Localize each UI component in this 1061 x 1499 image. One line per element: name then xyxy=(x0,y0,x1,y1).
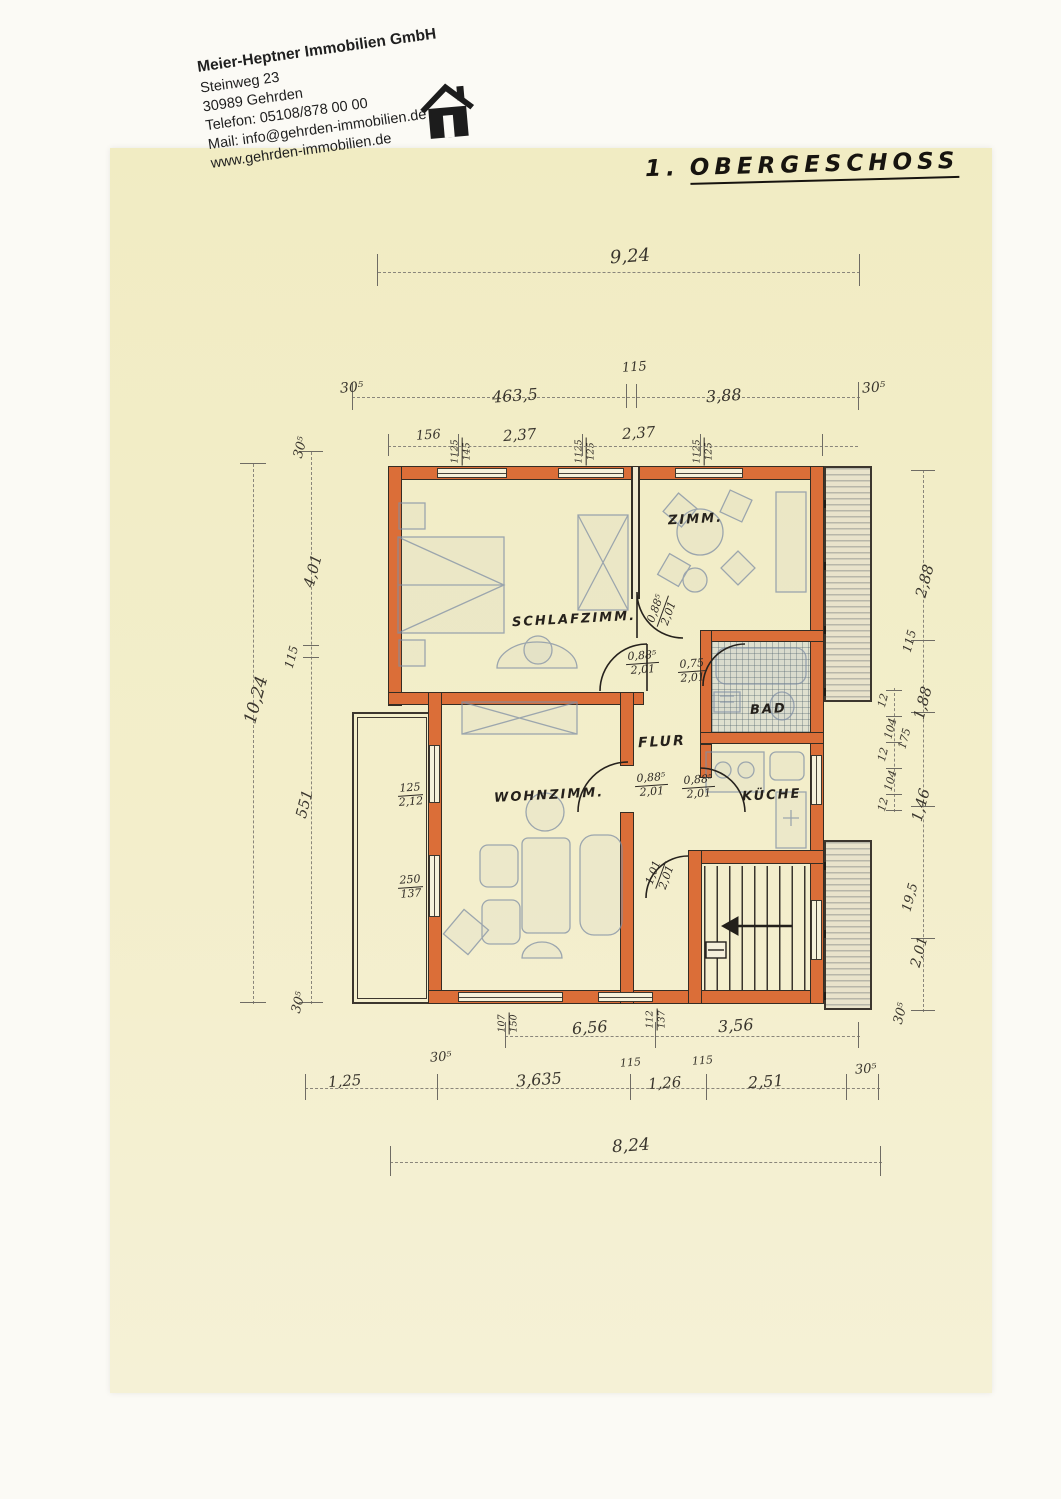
room-label-flur: FLUR xyxy=(638,733,687,751)
yellowed-paper-background xyxy=(110,148,992,1393)
window-top-3 xyxy=(675,468,743,478)
dim-tick xyxy=(886,810,902,811)
dim-top-156: 156 xyxy=(416,427,442,444)
dim-top-388: 3,88 xyxy=(705,385,742,406)
window-top-2 xyxy=(558,468,624,478)
dim-line xyxy=(253,464,254,1004)
dim-bottom-3635: 3,635 xyxy=(515,1068,562,1090)
window-size-left2: 250137 xyxy=(397,873,424,901)
room-label-kueche: KÜCHE xyxy=(742,786,802,804)
door-size-schlafzimmer: 0,88⁵2,01 xyxy=(625,649,660,678)
balcony-top-right xyxy=(824,466,872,702)
dim-tick xyxy=(240,1002,266,1003)
window-size-bottom1: 107150 xyxy=(498,1012,521,1034)
dim-tick xyxy=(305,1074,306,1100)
dim-tick xyxy=(880,1146,881,1176)
wall-bad-bottom xyxy=(700,732,824,744)
wall-schlafzimmer-bottom xyxy=(388,692,644,705)
dim-tick xyxy=(582,434,583,456)
dim-bottom-656: 6,56 xyxy=(571,1017,608,1038)
dim-top-305-left: 30⁵ xyxy=(339,379,363,397)
dim-tick xyxy=(858,1022,859,1048)
dim-tick xyxy=(858,382,859,410)
wall-bad-left xyxy=(700,630,712,744)
window-bottom-1 xyxy=(458,992,563,1002)
dim-bottom-305-a: 30⁵ xyxy=(430,1049,453,1065)
dim-tick xyxy=(822,434,823,456)
floor-title-number: 1. xyxy=(645,155,680,182)
dim-line xyxy=(505,1036,860,1037)
window-size-top3: 1125125 xyxy=(693,437,716,465)
dim-top-237-a: 2,37 xyxy=(502,425,537,445)
wall-bad-top xyxy=(700,630,824,642)
dim-tick xyxy=(911,470,935,471)
wall-flur-wohnzimmer-upper xyxy=(620,692,634,766)
window-size-top2: 1125125 xyxy=(575,437,598,465)
dim-tick xyxy=(630,1074,631,1100)
dim-tick xyxy=(437,1074,438,1100)
dim-tick xyxy=(846,1074,847,1100)
dim-top-305-right: 30⁵ xyxy=(861,379,885,397)
dim-tick xyxy=(458,434,459,456)
wall-stair-top xyxy=(688,850,824,864)
dim-tick xyxy=(886,690,902,691)
window-size-left1: 1252,12 xyxy=(397,781,424,809)
door-size-bad: 0,752,01 xyxy=(677,657,707,685)
dim-bottom-356: 3,56 xyxy=(717,1015,754,1036)
door-size-kueche: 0,88⁵2,01 xyxy=(681,773,716,802)
dim-top-overall: 9,24 xyxy=(609,245,650,269)
dim-line xyxy=(352,397,860,398)
dim-tick xyxy=(706,1074,707,1100)
dim-tick xyxy=(911,1010,935,1011)
wall-schlafzimmer-zimmer xyxy=(631,467,640,599)
dim-tick xyxy=(303,657,319,658)
window-left-2 xyxy=(429,855,440,917)
dim-tick xyxy=(240,463,266,464)
window-kueche-right xyxy=(811,755,822,805)
dim-top-115: 115 xyxy=(622,359,648,376)
window-top-1 xyxy=(437,468,507,478)
bad-tile-floor xyxy=(712,642,810,732)
wall-flur-wohnzimmer-lower xyxy=(620,812,634,1004)
dim-tick xyxy=(878,1074,879,1100)
dim-tick xyxy=(505,1022,506,1048)
balcony-bottom-right xyxy=(824,840,872,1010)
dim-bottom-115-a: 115 xyxy=(620,1055,642,1069)
dim-line xyxy=(390,1162,882,1163)
wall-stair-left xyxy=(688,850,702,1004)
dim-tick xyxy=(388,434,389,456)
dim-bottom-115-b: 115 xyxy=(692,1053,714,1067)
dim-tick xyxy=(390,1146,391,1176)
dim-top-4635: 463,5 xyxy=(491,384,538,406)
terrace-left xyxy=(352,712,432,1004)
dim-tick xyxy=(303,645,319,646)
dim-bottom-251: 2,51 xyxy=(747,1071,784,1092)
dim-bottom-305-b: 30⁵ xyxy=(855,1061,878,1077)
dim-bottom-125: 1,25 xyxy=(327,1071,362,1091)
room-label-bad: BAD xyxy=(750,701,788,718)
room-label-zimmer: ZIMM. xyxy=(668,511,724,529)
scanned-floorplan-page: Meier-Heptner Immobilien GmbH Steinweg 2… xyxy=(0,0,1061,1499)
dim-tick xyxy=(859,254,860,286)
window-bottom-2 xyxy=(598,992,653,1002)
wall-exterior-left-upper xyxy=(388,466,402,706)
dim-tick xyxy=(636,384,637,408)
staircase xyxy=(704,866,810,990)
dim-top-237-b: 2,37 xyxy=(621,423,656,443)
wall-wohnzimmer-left xyxy=(428,692,442,1004)
dim-tick xyxy=(626,384,627,408)
dim-bottom-126: 1,26 xyxy=(647,1073,682,1093)
dim-line xyxy=(305,1088,880,1089)
dim-tick xyxy=(377,254,378,286)
dim-bottom-overall: 8,24 xyxy=(611,1135,650,1158)
terrace-door-left xyxy=(429,745,440,803)
dim-tick xyxy=(700,434,701,456)
door-size-wohnzimmer: 0,88⁵2,01 xyxy=(634,771,669,800)
window-size-top1: 1125145 xyxy=(451,437,474,465)
dim-tick xyxy=(886,794,902,795)
window-size-bottom2: 112137 xyxy=(646,1008,669,1030)
dim-tick xyxy=(655,1022,656,1048)
dim-line xyxy=(311,452,312,1004)
dim-line xyxy=(923,470,924,1012)
dim-line xyxy=(378,272,860,273)
window-stair-right xyxy=(811,900,822,960)
